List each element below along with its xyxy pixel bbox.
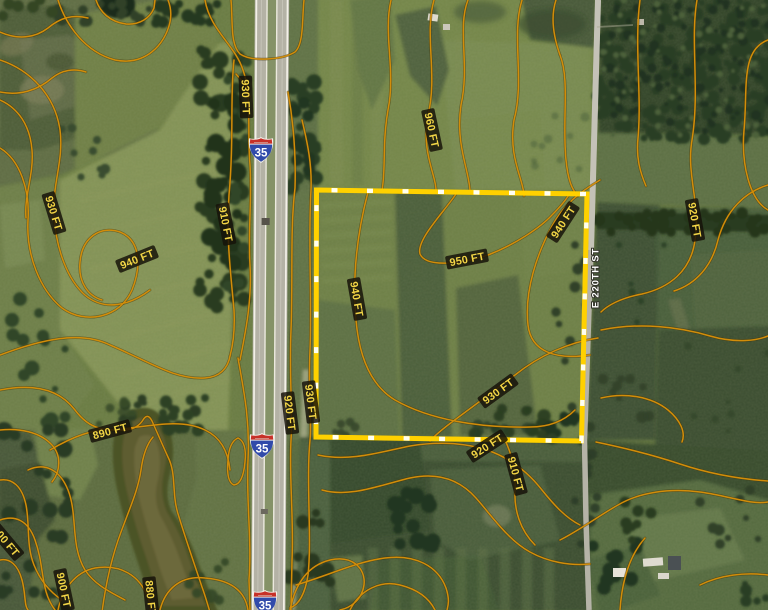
svg-text:930 FT: 930 FT — [238, 79, 251, 115]
svg-text:E 220TH ST: E 220TH ST — [590, 248, 601, 308]
